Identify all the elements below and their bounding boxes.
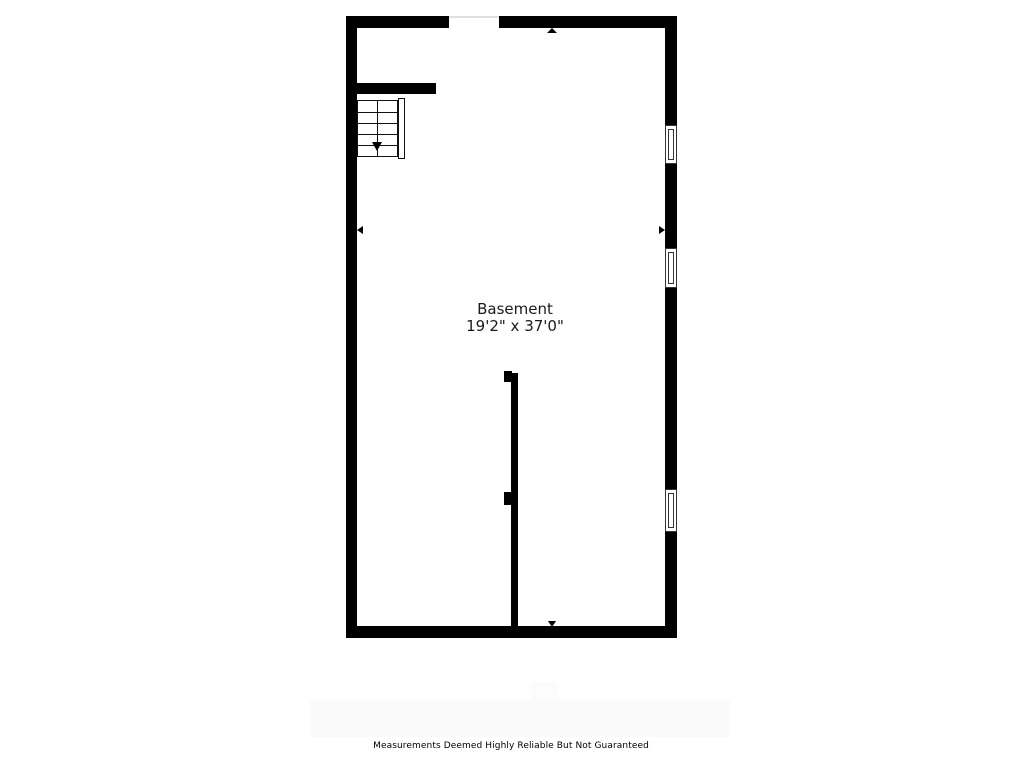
wall-interior-horizontal [346, 83, 436, 94]
wall-interior-vertical [511, 373, 518, 638]
window-icon [665, 125, 677, 164]
wall-left [346, 16, 357, 638]
dimension-arrow-left-icon [357, 226, 363, 234]
wall-top-left [346, 16, 449, 28]
floorplan: Basement 19'2" x 37'0" [0, 0, 1024, 768]
window-icon [665, 489, 677, 532]
stair-railing [398, 98, 405, 159]
disclaimer-text: Measurements Deemed Highly Reliable But … [0, 741, 1022, 751]
room-name: Basement [395, 301, 635, 318]
dimension-arrow-down-icon [548, 621, 556, 627]
dimension-arrow-right-icon [659, 226, 665, 234]
wall-cap-mid [504, 492, 512, 505]
stair-direction-down-icon [372, 142, 382, 151]
wall-top-right [499, 16, 677, 28]
room-label-group: Basement 19'2" x 37'0" [395, 301, 635, 335]
wall-cap-top [504, 371, 512, 382]
window-pane [668, 493, 674, 528]
dimension-arrow-up-icon [547, 28, 557, 33]
window-pane [668, 129, 674, 160]
window-icon [665, 248, 677, 288]
opening-line [449, 16, 499, 18]
floorplan-page: Basement 19'2" x 37'0" Measurements Deem… [0, 0, 1024, 768]
staircase [357, 100, 398, 157]
window-pane [668, 252, 674, 284]
wall-right [665, 16, 677, 638]
room-dimensions: 19'2" x 37'0" [395, 318, 635, 335]
